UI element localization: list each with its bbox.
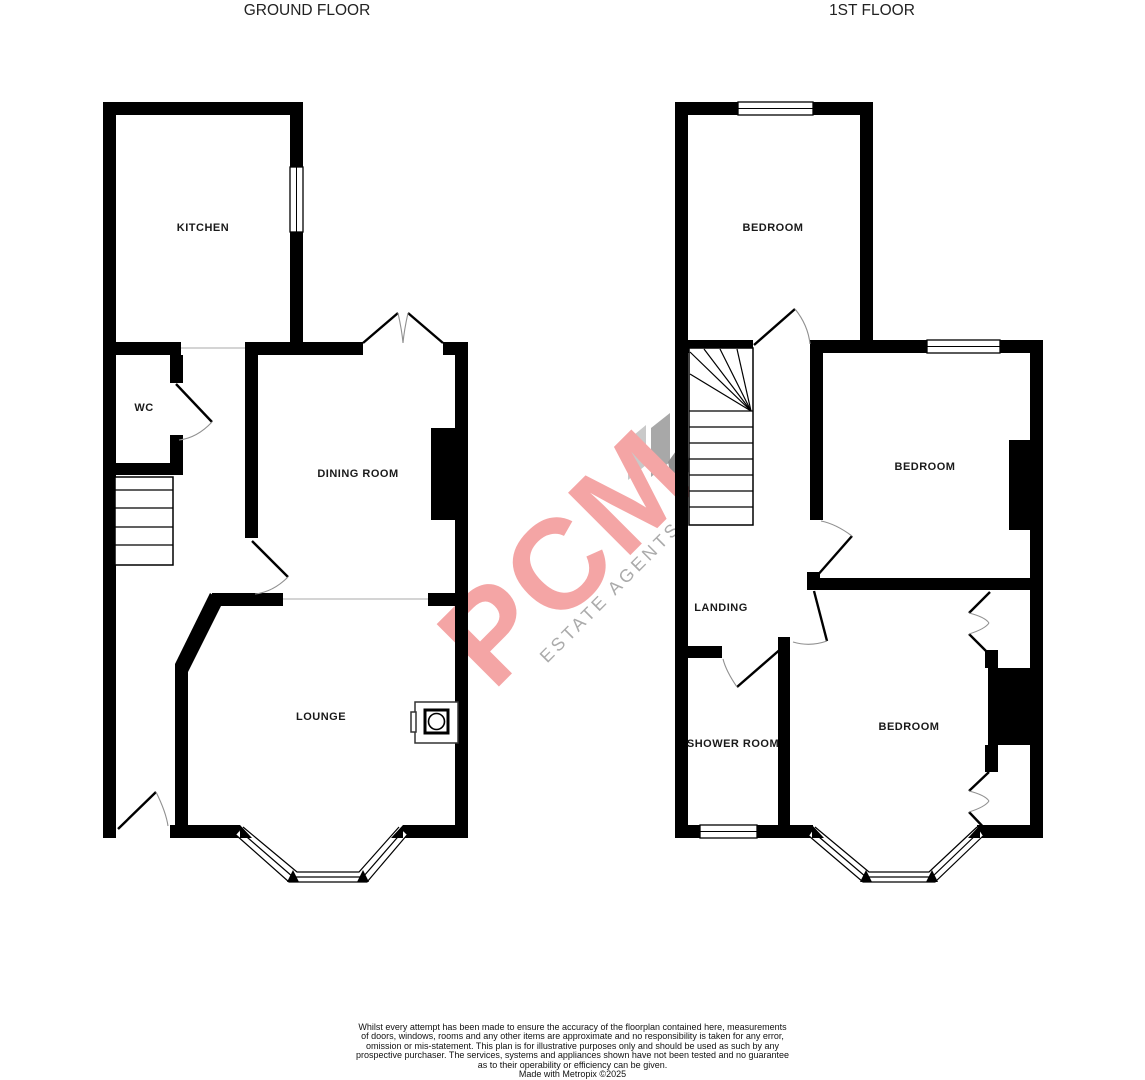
room-label-bedroom-top: BEDROOM xyxy=(743,222,804,234)
room-label-kitchen: KITCHEN xyxy=(177,222,229,234)
wall xyxy=(103,463,183,475)
room-label-shower-room: SHOWER ROOM xyxy=(687,738,779,750)
wall-post xyxy=(985,745,998,772)
room-label-dining-room: DINING ROOM xyxy=(317,468,398,480)
disclaimer-made-with: Made with Metropix ©2025 xyxy=(0,1070,1145,1079)
window xyxy=(927,340,1000,353)
wall-angled xyxy=(175,593,223,672)
wall xyxy=(175,664,188,827)
chimney-breast xyxy=(431,428,455,520)
room-label-bedroom-bottom: BEDROOM xyxy=(879,721,940,733)
wall xyxy=(103,342,181,355)
disclaimer-text: Whilst every attempt has been made to en… xyxy=(0,1023,1145,1079)
room-label-bedroom-middle: BEDROOM xyxy=(895,461,956,473)
chimney-breast xyxy=(988,668,1030,745)
bifold-door-cupboard-lower xyxy=(969,772,989,832)
wall xyxy=(860,340,927,353)
wall xyxy=(675,102,688,838)
window xyxy=(738,102,813,115)
wall xyxy=(103,102,303,115)
floorplan-canvas: PCM ESTATE AGENTS xyxy=(0,0,1145,1080)
door-swing-dining xyxy=(252,541,288,594)
room-label-lounge: LOUNGE xyxy=(296,711,346,723)
door-swing-bedroom-top xyxy=(754,309,810,345)
room-label-landing: LANDING xyxy=(694,602,748,614)
wall xyxy=(455,342,468,838)
bay-window xyxy=(809,825,983,882)
door-swing-bedroom-bottom xyxy=(793,591,827,644)
wall xyxy=(778,637,790,827)
bay-window xyxy=(236,825,407,882)
french-doors xyxy=(363,313,443,343)
floorplan-drawing: PCM ESTATE AGENTS xyxy=(0,0,1145,1080)
wall xyxy=(688,646,722,658)
wall xyxy=(860,102,873,353)
wall xyxy=(675,102,738,115)
stairs-ground xyxy=(115,477,173,565)
title-first-floor: 1ST FLOOR xyxy=(829,2,915,19)
bifold-door-cupboard-upper xyxy=(969,592,990,654)
stove-icon xyxy=(411,702,458,743)
floorplan-ground: KITCHEN WC DINING ROOM LOUNGE xyxy=(103,102,468,882)
window xyxy=(700,825,757,838)
wall xyxy=(757,825,813,838)
door-swing-wc xyxy=(176,384,212,440)
wall xyxy=(810,578,1043,590)
room-label-wc: WC xyxy=(134,402,153,414)
wall xyxy=(212,593,283,606)
wall xyxy=(810,340,823,520)
wall xyxy=(170,825,240,838)
title-ground-floor: GROUND FLOOR xyxy=(244,2,371,19)
window xyxy=(290,167,303,232)
wall xyxy=(290,102,303,167)
floorplan-first: BEDROOM BEDROOM LANDING SHOWER ROOM BEDR… xyxy=(675,102,1043,882)
wall xyxy=(170,355,183,383)
door-swing-bedroom-middle xyxy=(816,521,852,577)
stairs-first xyxy=(689,348,753,525)
chimney-breast xyxy=(1009,440,1030,530)
door-swing-front-entrance xyxy=(118,792,168,829)
door-swing-shower-room xyxy=(723,647,783,687)
wall xyxy=(403,825,455,838)
wall xyxy=(675,825,700,838)
wall xyxy=(245,342,258,538)
wall xyxy=(428,593,455,606)
wall xyxy=(290,232,303,342)
wall xyxy=(245,342,363,355)
